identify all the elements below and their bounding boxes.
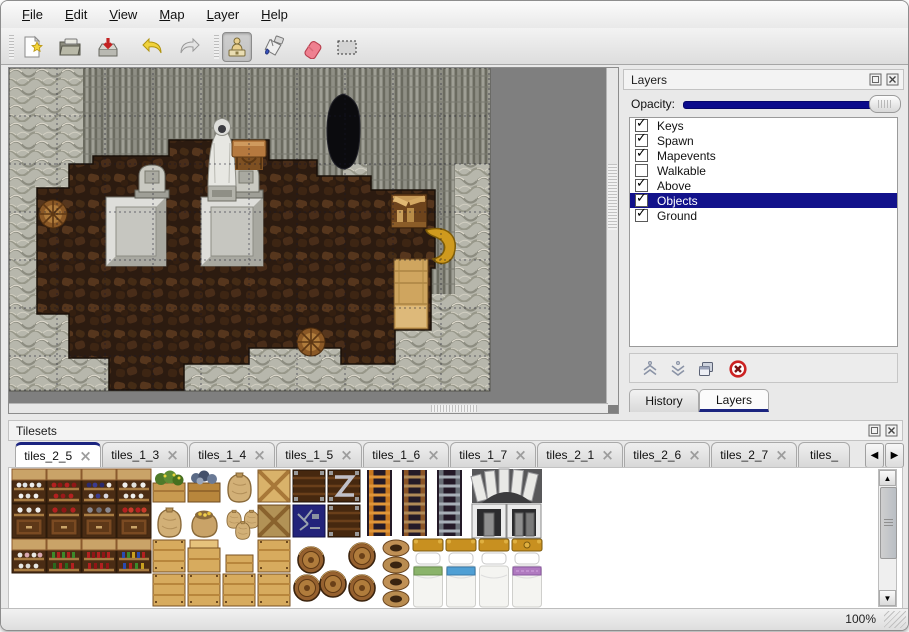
tileset-tab-label: tiles_1_6 <box>372 448 420 462</box>
eraser-tool-button[interactable] <box>296 32 326 62</box>
basket-2 <box>297 328 325 356</box>
status-bar: 100% <box>1 608 908 630</box>
layer-row-mapevents[interactable]: ✓Mapevents <box>630 148 897 163</box>
menu-file[interactable]: File <box>11 1 54 28</box>
tall-crate <box>394 259 428 329</box>
menu-map[interactable]: Map <box>148 1 195 28</box>
save-button[interactable] <box>93 32 123 62</box>
tileset-tab-label: tiles_2_6 <box>633 448 681 462</box>
close-panel-icon[interactable] <box>885 424 898 437</box>
tileset-tab-label: tiles_1_5 <box>285 448 333 462</box>
up-arrow-icon: ▲ <box>884 474 892 483</box>
stone-platform-1 <box>106 197 166 266</box>
layers-panel-title: Layers <box>631 73 667 87</box>
layer-name: Objects <box>657 194 698 208</box>
tileset-tab-bar: tiles_2_5×tiles_1_3×tiles_1_4×tiles_1_5×… <box>8 442 903 468</box>
resize-grip[interactable] <box>884 611 906 628</box>
tileset-tab-tiles_2_1[interactable]: tiles_2_1× <box>537 442 623 468</box>
duplicate-icon <box>697 360 715 378</box>
tileset-tab-label: tiles_1_7 <box>459 448 507 462</box>
redo-button[interactable] <box>175 32 205 62</box>
float-panel-icon[interactable] <box>869 73 882 86</box>
map-viewport[interactable] <box>8 67 619 414</box>
tab-scroll-left-button[interactable]: ◀ <box>865 443 884 468</box>
tileset-tab-tiles_2_7[interactable]: tiles_2_7× <box>711 442 797 468</box>
delete-circle-icon <box>729 360 747 378</box>
stamp-icon <box>225 35 249 59</box>
lower-layer-button[interactable] <box>666 358 690 380</box>
tileset-tab-tiles_1_7[interactable]: tiles_1_7× <box>450 442 536 468</box>
undo-arrow-icon <box>140 35 164 59</box>
left-arrow-icon: ◀ <box>871 450 879 461</box>
layer-row-above[interactable]: ✓Above <box>630 178 897 193</box>
layer-row-keys[interactable]: ✓Keys <box>630 118 897 133</box>
select-tool-button[interactable] <box>332 32 362 62</box>
map-vertical-thumb[interactable] <box>608 164 617 230</box>
open-button[interactable] <box>55 32 85 62</box>
tileset-vertical-scrollbar[interactable]: ▲ ▼ <box>878 469 897 607</box>
layer-button-bar <box>629 353 898 383</box>
stone-platform-2 <box>201 197 263 266</box>
tileset-tab-tiles_2_5[interactable]: tiles_2_5× <box>15 442 101 468</box>
menu-bar: FileEditViewMapLayerHelp <box>1 1 908 28</box>
toolbar-grip[interactable] <box>9 35 14 59</box>
duplicate-layer-button[interactable] <box>694 358 718 380</box>
menu-view[interactable]: View <box>98 1 148 28</box>
menu-edit[interactable]: Edit <box>54 1 98 28</box>
map-horizontal-thumb[interactable] <box>431 405 477 412</box>
tileset-tab-label: tiles_1_4 <box>198 448 246 462</box>
toolbar-grip-2[interactable] <box>214 35 219 59</box>
tileset-tab-tiles_1_3[interactable]: tiles_1_3× <box>102 442 188 468</box>
gravestone-1 <box>135 165 169 198</box>
tab-close-icon[interactable]: × <box>514 449 527 461</box>
float-panel-icon[interactable] <box>868 424 881 437</box>
dock-tab-layers[interactable]: Layers <box>699 389 769 412</box>
tilesets-panel-header: Tilesets <box>8 420 903 441</box>
zoom-level: 100% <box>845 612 876 626</box>
new-file-button[interactable] <box>17 32 47 62</box>
tileset-tab-tiles_1_5[interactable]: tiles_1_5× <box>276 442 362 468</box>
layer-name: Keys <box>657 119 684 133</box>
opacity-label: Opacity: <box>631 97 675 111</box>
tab-close-icon[interactable]: × <box>166 449 179 461</box>
tab-scroll-right-button[interactable]: ▶ <box>885 443 904 468</box>
tileset-image[interactable] <box>11 468 545 608</box>
layer-name: Spawn <box>657 134 694 148</box>
broken-crate <box>391 194 427 228</box>
layer-name: Ground <box>657 209 697 223</box>
tileset-tab-label: tiles_ <box>810 448 838 462</box>
layer-visibility-checkbox[interactable]: ✓ <box>635 149 648 162</box>
selection-rect-icon <box>335 35 359 59</box>
tab-close-icon[interactable]: × <box>253 449 266 461</box>
cave-opening <box>327 94 360 169</box>
eraser-icon <box>299 35 323 59</box>
layers-panel-header: Layers <box>623 69 904 90</box>
opacity-slider-track[interactable] <box>683 101 899 109</box>
right-arrow-icon: ▶ <box>891 450 899 461</box>
save-disk-icon <box>96 35 120 59</box>
layer-list: ✓Keys✓Spawn✓MapeventsWalkable✓Above✓Obje… <box>629 117 898 347</box>
map-vertical-scrollbar[interactable] <box>606 68 618 405</box>
tileset-tab-tiles_2_6[interactable]: tiles_2_6× <box>624 442 710 468</box>
tileset-tab-tiles_1_4[interactable]: tiles_1_4× <box>189 442 275 468</box>
layer-name: Mapevents <box>657 149 716 163</box>
layer-name: Above <box>657 179 691 193</box>
tileset-content[interactable]: ▲ ▼ <box>8 467 903 609</box>
layer-name: Walkable <box>657 164 706 178</box>
new-page-icon <box>20 35 44 59</box>
opacity-slider-handle[interactable] <box>869 95 901 113</box>
menu-help[interactable]: Help <box>250 1 299 28</box>
tab-close-icon[interactable]: × <box>601 449 614 461</box>
paint-bucket-icon <box>263 35 287 59</box>
layer-row-spawn[interactable]: ✓Spawn <box>630 133 897 148</box>
layer-visibility-checkbox[interactable]: ✓ <box>635 209 648 222</box>
basket-1 <box>39 200 67 228</box>
down-arrow-icon: ▼ <box>884 594 892 603</box>
tileset-scroll-thumb[interactable] <box>880 487 897 559</box>
map-canvas[interactable] <box>9 68 608 405</box>
layer-row-walkable[interactable]: Walkable <box>630 163 897 178</box>
tileset-tab-tiles_1_6[interactable]: tiles_1_6× <box>363 442 449 468</box>
layer-row-ground[interactable]: ✓Ground <box>630 208 897 223</box>
stamp-tool-button[interactable] <box>222 32 252 62</box>
menu-layer[interactable]: Layer <box>196 1 251 28</box>
redo-arrow-icon <box>178 35 202 59</box>
tab-close-icon[interactable]: × <box>340 449 353 461</box>
layer-row-objects[interactable]: ✓Objects <box>630 193 897 208</box>
tab-close-icon[interactable]: × <box>427 449 440 461</box>
tileset-tab-label: tiles_1_3 <box>111 448 159 462</box>
chevrons-up-icon <box>641 360 659 378</box>
map-horizontal-scrollbar[interactable] <box>9 403 608 413</box>
delete-layer-button[interactable] <box>726 358 750 380</box>
tileset-scroll-down-button[interactable]: ▼ <box>879 590 896 606</box>
raise-layer-button[interactable] <box>638 358 662 380</box>
app-window: FileEditViewMapLayerHelp <box>0 0 909 631</box>
close-panel-icon[interactable] <box>886 73 899 86</box>
tileset-scroll-up-button[interactable]: ▲ <box>879 470 896 486</box>
map-scene <box>9 68 490 391</box>
tab-close-icon[interactable]: × <box>79 450 92 462</box>
tilesets-panel-title: Tilesets <box>16 424 57 438</box>
tab-close-icon[interactable]: × <box>688 449 701 461</box>
fill-tool-button[interactable] <box>260 32 290 62</box>
tileset-tab-label: tiles_2_7 <box>720 448 768 462</box>
tab-close-icon[interactable]: × <box>775 449 788 461</box>
tileset-tab-label: tiles_2_1 <box>546 448 594 462</box>
dock-tab-history[interactable]: History <box>629 389 699 412</box>
undo-button[interactable] <box>137 32 167 62</box>
tileset-tab-label: tiles_2_5 <box>24 449 72 463</box>
chevrons-down-icon <box>669 360 687 378</box>
tileset-tab-tiles[interactable]: tiles_ <box>798 442 850 468</box>
open-folder-icon <box>58 35 82 59</box>
